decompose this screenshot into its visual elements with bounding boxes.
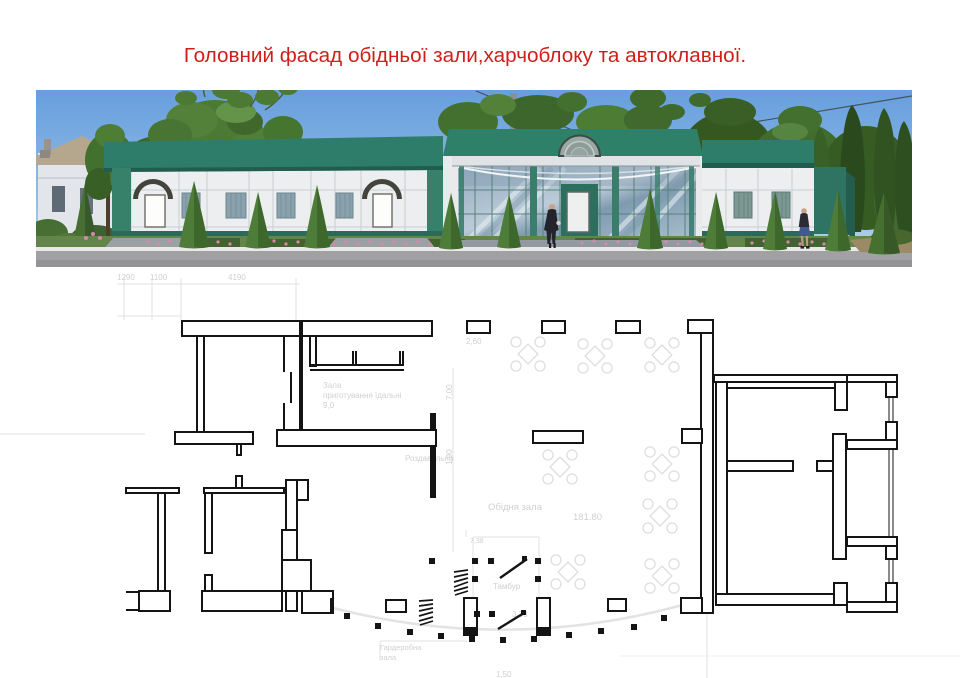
svg-text:Зала: Зала <box>323 381 342 390</box>
svg-text:приготування їдальні: приготування їдальні <box>323 391 402 400</box>
svg-text:4190: 4190 <box>228 273 246 282</box>
svg-text:Гардеробна: Гардеробна <box>380 643 422 652</box>
svg-text:1100: 1100 <box>150 273 168 282</box>
svg-text:7,00: 7,00 <box>445 384 454 400</box>
svg-text:181.80: 181.80 <box>573 512 602 523</box>
svg-text:1290: 1290 <box>117 273 135 282</box>
svg-text:зала: зала <box>380 653 397 662</box>
svg-text:Обідня зала: Обідня зала <box>488 502 543 513</box>
svg-text:Тамбур: Тамбур <box>493 582 521 591</box>
svg-text:1,50: 1,50 <box>496 670 512 678</box>
svg-text:9,0: 9,0 <box>323 401 335 410</box>
svg-text:2,60: 2,60 <box>466 337 482 346</box>
svg-text:7,38: 7,38 <box>470 538 484 545</box>
svg-text:1,90: 1,90 <box>445 449 454 465</box>
